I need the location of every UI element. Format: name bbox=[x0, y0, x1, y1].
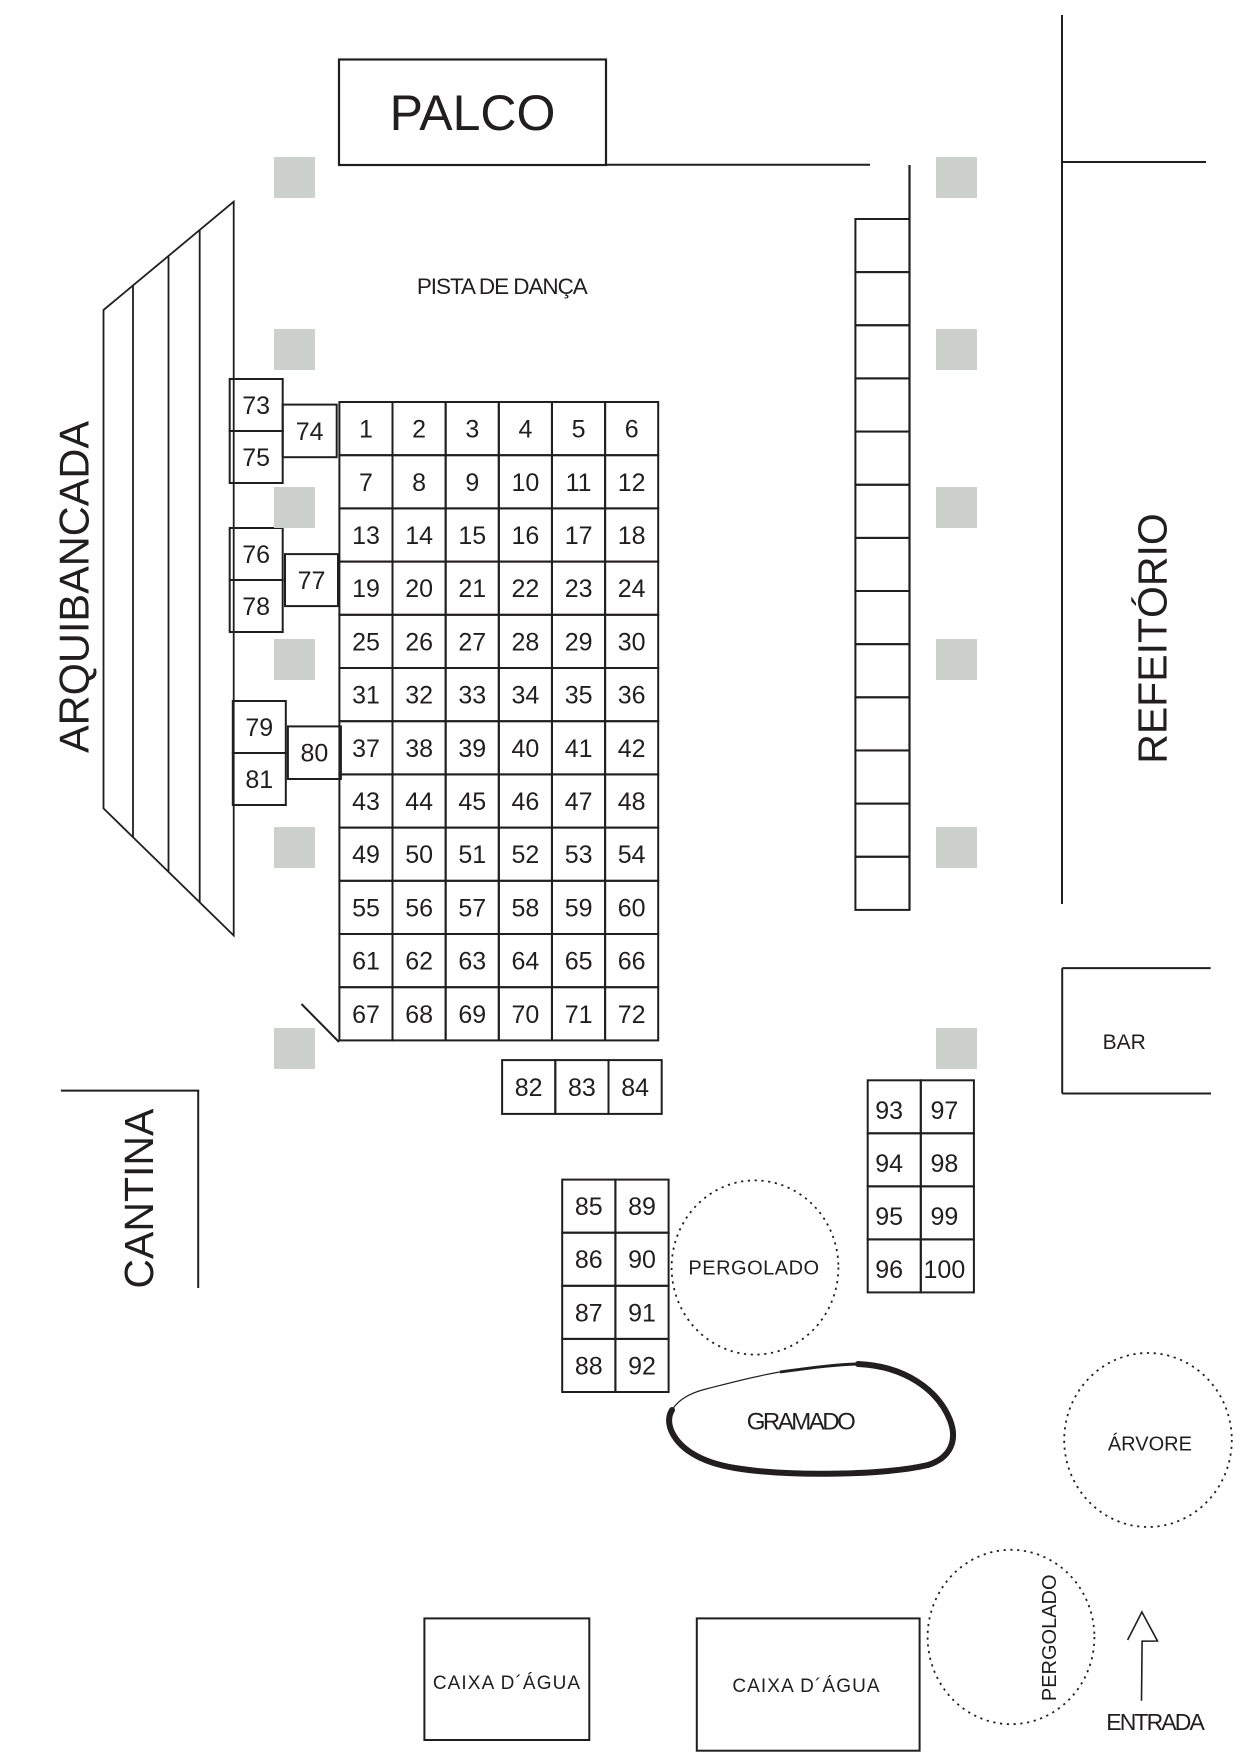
svg-text:45: 45 bbox=[458, 788, 486, 816]
svg-text:64: 64 bbox=[511, 948, 539, 976]
svg-text:70: 70 bbox=[511, 1001, 539, 1029]
svg-text:95: 95 bbox=[875, 1203, 903, 1231]
svg-text:48: 48 bbox=[618, 788, 646, 816]
svg-text:11: 11 bbox=[566, 469, 592, 497]
svg-text:32: 32 bbox=[405, 682, 433, 710]
svg-text:CAIXA D´ÁGUA: CAIXA D´ÁGUA bbox=[732, 1676, 880, 1697]
svg-text:4: 4 bbox=[518, 416, 532, 444]
svg-text:50: 50 bbox=[405, 841, 433, 869]
svg-text:12: 12 bbox=[618, 469, 646, 497]
svg-text:91: 91 bbox=[628, 1299, 656, 1327]
svg-text:33: 33 bbox=[458, 682, 486, 710]
svg-text:8: 8 bbox=[412, 469, 426, 497]
svg-text:56: 56 bbox=[405, 894, 433, 922]
svg-text:22: 22 bbox=[511, 575, 539, 603]
svg-text:39: 39 bbox=[458, 735, 486, 763]
svg-text:66: 66 bbox=[618, 948, 646, 976]
svg-text:26: 26 bbox=[405, 628, 433, 656]
svg-text:3: 3 bbox=[465, 416, 479, 444]
svg-text:30: 30 bbox=[618, 628, 646, 656]
svg-text:38: 38 bbox=[405, 735, 433, 763]
svg-text:BAR: BAR bbox=[1103, 1031, 1146, 1054]
svg-text:52: 52 bbox=[511, 841, 539, 869]
svg-text:72: 72 bbox=[618, 1001, 646, 1029]
svg-text:98: 98 bbox=[930, 1150, 958, 1178]
svg-text:81: 81 bbox=[245, 766, 273, 794]
svg-text:65: 65 bbox=[565, 948, 593, 976]
svg-text:59: 59 bbox=[565, 894, 593, 922]
svg-text:2: 2 bbox=[412, 416, 426, 444]
svg-text:GRAMADO: GRAMADO bbox=[747, 1409, 855, 1436]
svg-text:58: 58 bbox=[511, 894, 539, 922]
svg-text:ENTRADA: ENTRADA bbox=[1106, 1709, 1205, 1735]
svg-text:80: 80 bbox=[300, 740, 328, 768]
svg-text:25: 25 bbox=[352, 628, 380, 656]
svg-text:18: 18 bbox=[618, 522, 646, 550]
svg-text:CAIXA D´ÁGUA: CAIXA D´ÁGUA bbox=[433, 1673, 581, 1694]
svg-text:63: 63 bbox=[458, 948, 486, 976]
svg-text:62: 62 bbox=[405, 948, 433, 976]
svg-text:24: 24 bbox=[618, 575, 646, 603]
svg-text:89: 89 bbox=[628, 1193, 656, 1221]
svg-text:76: 76 bbox=[242, 541, 270, 569]
svg-text:ÁRVORE: ÁRVORE bbox=[1108, 1432, 1192, 1455]
svg-text:10: 10 bbox=[511, 469, 539, 497]
svg-text:CANTINA: CANTINA bbox=[116, 1108, 162, 1289]
svg-text:6: 6 bbox=[625, 416, 639, 444]
svg-text:92: 92 bbox=[628, 1352, 656, 1380]
svg-text:PERGOLADO: PERGOLADO bbox=[1039, 1574, 1061, 1701]
svg-text:43: 43 bbox=[352, 788, 380, 816]
svg-text:20: 20 bbox=[405, 575, 433, 603]
svg-text:96: 96 bbox=[875, 1256, 903, 1284]
svg-text:78: 78 bbox=[242, 593, 270, 621]
svg-text:ARQUIBANCADA: ARQUIBANCADA bbox=[50, 421, 97, 753]
svg-text:90: 90 bbox=[628, 1246, 656, 1274]
svg-text:82: 82 bbox=[515, 1074, 543, 1102]
svg-text:86: 86 bbox=[575, 1246, 603, 1274]
svg-text:54: 54 bbox=[618, 841, 646, 869]
svg-text:75: 75 bbox=[242, 444, 270, 472]
svg-text:84: 84 bbox=[621, 1074, 649, 1102]
svg-text:67: 67 bbox=[352, 1001, 380, 1029]
svg-text:73: 73 bbox=[242, 392, 270, 420]
svg-text:61: 61 bbox=[352, 948, 380, 976]
svg-text:36: 36 bbox=[618, 682, 646, 710]
svg-text:21: 21 bbox=[458, 575, 486, 603]
svg-text:PALCO: PALCO bbox=[390, 85, 556, 141]
svg-text:97: 97 bbox=[930, 1097, 958, 1125]
svg-text:74: 74 bbox=[296, 418, 324, 446]
svg-text:19: 19 bbox=[352, 575, 380, 603]
svg-text:35: 35 bbox=[565, 682, 593, 710]
svg-text:44: 44 bbox=[405, 788, 433, 816]
svg-text:88: 88 bbox=[575, 1352, 603, 1380]
svg-text:60: 60 bbox=[618, 894, 646, 922]
svg-text:29: 29 bbox=[565, 628, 593, 656]
svg-text:34: 34 bbox=[511, 682, 539, 710]
svg-text:23: 23 bbox=[565, 575, 593, 603]
svg-text:47: 47 bbox=[565, 788, 593, 816]
svg-text:7: 7 bbox=[359, 469, 373, 497]
svg-text:51: 51 bbox=[458, 841, 486, 869]
svg-text:99: 99 bbox=[930, 1203, 958, 1231]
svg-text:16: 16 bbox=[511, 522, 539, 550]
svg-text:94: 94 bbox=[875, 1150, 903, 1178]
svg-text:87: 87 bbox=[575, 1299, 603, 1327]
svg-text:37: 37 bbox=[352, 735, 380, 763]
svg-text:57: 57 bbox=[458, 894, 486, 922]
svg-text:93: 93 bbox=[875, 1097, 903, 1125]
svg-text:69: 69 bbox=[458, 1001, 486, 1029]
svg-text:PISTA DE DANÇA: PISTA DE DANÇA bbox=[417, 274, 588, 299]
svg-text:100: 100 bbox=[924, 1256, 966, 1284]
svg-text:71: 71 bbox=[565, 1001, 593, 1029]
svg-text:28: 28 bbox=[511, 628, 539, 656]
svg-text:40: 40 bbox=[511, 735, 539, 763]
svg-text:83: 83 bbox=[568, 1074, 596, 1102]
svg-text:9: 9 bbox=[465, 469, 479, 497]
svg-text:41: 41 bbox=[565, 735, 593, 763]
svg-text:14: 14 bbox=[405, 522, 433, 550]
svg-text:1: 1 bbox=[359, 416, 373, 444]
svg-text:REFEITÓRIO: REFEITÓRIO bbox=[1130, 513, 1176, 764]
svg-text:31: 31 bbox=[352, 682, 380, 710]
svg-text:79: 79 bbox=[245, 714, 273, 742]
svg-text:55: 55 bbox=[352, 894, 380, 922]
svg-text:85: 85 bbox=[575, 1193, 603, 1221]
svg-text:49: 49 bbox=[352, 841, 380, 869]
svg-text:77: 77 bbox=[298, 567, 326, 595]
svg-text:13: 13 bbox=[352, 522, 380, 550]
svg-text:15: 15 bbox=[458, 522, 486, 550]
svg-text:5: 5 bbox=[572, 416, 586, 444]
svg-text:PERGOLADO: PERGOLADO bbox=[688, 1258, 819, 1280]
svg-text:68: 68 bbox=[405, 1001, 433, 1029]
svg-text:17: 17 bbox=[565, 522, 593, 550]
svg-text:27: 27 bbox=[458, 628, 486, 656]
svg-text:53: 53 bbox=[565, 841, 593, 869]
svg-text:42: 42 bbox=[618, 735, 646, 763]
svg-text:46: 46 bbox=[511, 788, 539, 816]
